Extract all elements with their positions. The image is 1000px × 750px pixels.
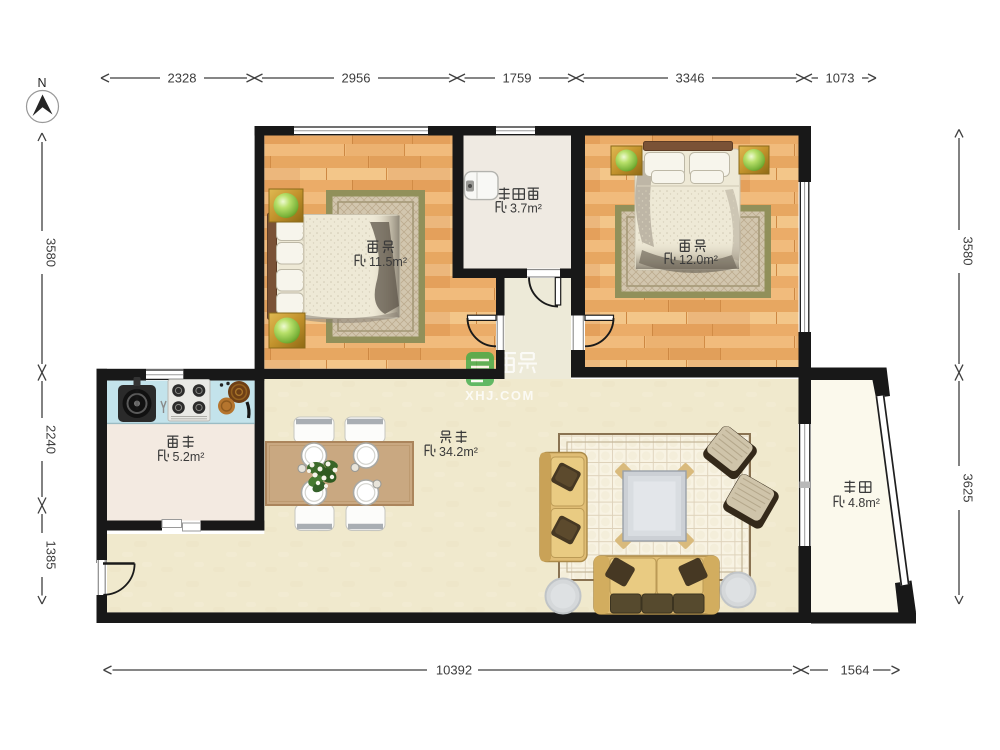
svg-text:1564: 1564 (841, 663, 870, 678)
svg-text:5.2m²: 5.2m² (173, 450, 205, 464)
svg-text:12.0m²: 12.0m² (679, 253, 718, 267)
svg-text:3346: 3346 (676, 71, 705, 86)
svg-text:1385: 1385 (44, 541, 59, 570)
svg-text:3580: 3580 (961, 237, 976, 266)
svg-text:4.8m²: 4.8m² (848, 496, 880, 510)
svg-text:3580: 3580 (44, 238, 59, 267)
svg-text:2956: 2956 (342, 71, 371, 86)
svg-text:3.7m²: 3.7m² (510, 202, 542, 216)
svg-text:2240: 2240 (44, 425, 59, 454)
svg-text:N: N (37, 76, 46, 90)
svg-text:10392: 10392 (436, 663, 472, 678)
svg-text:XHJ.COM: XHJ.COM (465, 388, 535, 403)
svg-text:11.5m²: 11.5m² (369, 255, 407, 269)
svg-text:1073: 1073 (826, 71, 855, 86)
svg-text:3625: 3625 (961, 474, 976, 503)
svg-text:2328: 2328 (168, 71, 197, 86)
svg-text:34.2m²: 34.2m² (439, 445, 478, 459)
svg-text:1759: 1759 (503, 71, 532, 86)
